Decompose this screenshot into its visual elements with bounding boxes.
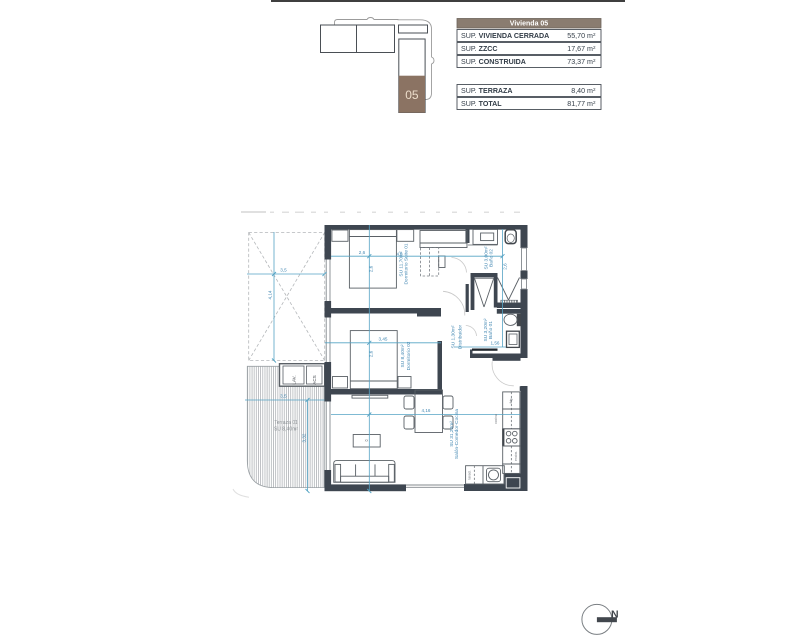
svg-text:81,77 m2: 81,77 m2: [567, 100, 596, 108]
svg-text:Vivienda 05: Vivienda 05: [510, 21, 549, 28]
svg-text:xx: xx: [365, 439, 369, 443]
svg-text:SUP. ZZCC: SUP. ZZCC: [461, 45, 498, 53]
svg-text:SU 3,20m²: SU 3,20m²: [483, 318, 489, 341]
svg-text:55,70 m2: 55,70 m2: [567, 32, 596, 40]
svg-text:N: N: [611, 609, 619, 621]
svg-text:SU 31,20m²: SU 31,20m²: [449, 421, 455, 447]
svg-text:73,37 m2: 73,37 m2: [567, 58, 596, 66]
svg-text:frig.: frig.: [509, 398, 513, 404]
svg-text:2,6: 2,6: [369, 265, 374, 272]
svg-text:Dormitorio 02: Dormitorio 02: [406, 341, 412, 370]
svg-text:SU 3,00m²: SU 3,00m²: [484, 246, 490, 269]
svg-text:4,16: 4,16: [422, 408, 431, 413]
svg-text:8,40 m2: 8,40 m2: [571, 87, 596, 95]
svg-text:2,6: 2,6: [369, 350, 374, 357]
svg-text:05: 05: [405, 88, 419, 102]
svg-text:3,5: 3,5: [280, 394, 287, 399]
svg-text:SU 11,70m²: SU 11,70m²: [399, 251, 405, 277]
svg-text:SU 1,30m²: SU 1,30m²: [450, 325, 456, 348]
svg-text:Terraza 01: Terraza 01: [274, 420, 298, 426]
svg-text:Distribuidor: Distribuidor: [457, 324, 463, 349]
svg-text:LAV.: LAV.: [292, 375, 297, 384]
svg-text:SUP. VIVIENDA CERRADA: SUP. VIVIENDA CERRADA: [461, 32, 549, 40]
svg-text:lavad.: lavad.: [468, 470, 472, 479]
svg-text:SUP. CONSTRUIDA: SUP. CONSTRUIDA: [461, 58, 526, 66]
svg-text:encim.: encim.: [514, 451, 518, 461]
svg-text:ACS: ACS: [312, 375, 317, 384]
svg-text:SUP. TOTAL: SUP. TOTAL: [461, 100, 502, 108]
svg-text:SU 8,40m²: SU 8,40m²: [400, 344, 406, 367]
svg-text:SU 8,40m²: SU 8,40m²: [274, 427, 298, 433]
svg-text:3,45: 3,45: [379, 336, 388, 341]
svg-text:2,6: 2,6: [502, 263, 507, 270]
svg-text:1,56: 1,56: [491, 341, 500, 346]
svg-text:3,32: 3,32: [301, 433, 306, 442]
svg-text:2,6: 2,6: [359, 250, 366, 255]
svg-text:3,5: 3,5: [280, 268, 287, 273]
svg-text:4,14: 4,14: [268, 290, 273, 299]
svg-text:SUP. TERRAZA: SUP. TERRAZA: [461, 87, 513, 95]
svg-text:17,67 m2: 17,67 m2: [567, 45, 596, 53]
svg-text:cocina: cocina: [494, 414, 498, 424]
